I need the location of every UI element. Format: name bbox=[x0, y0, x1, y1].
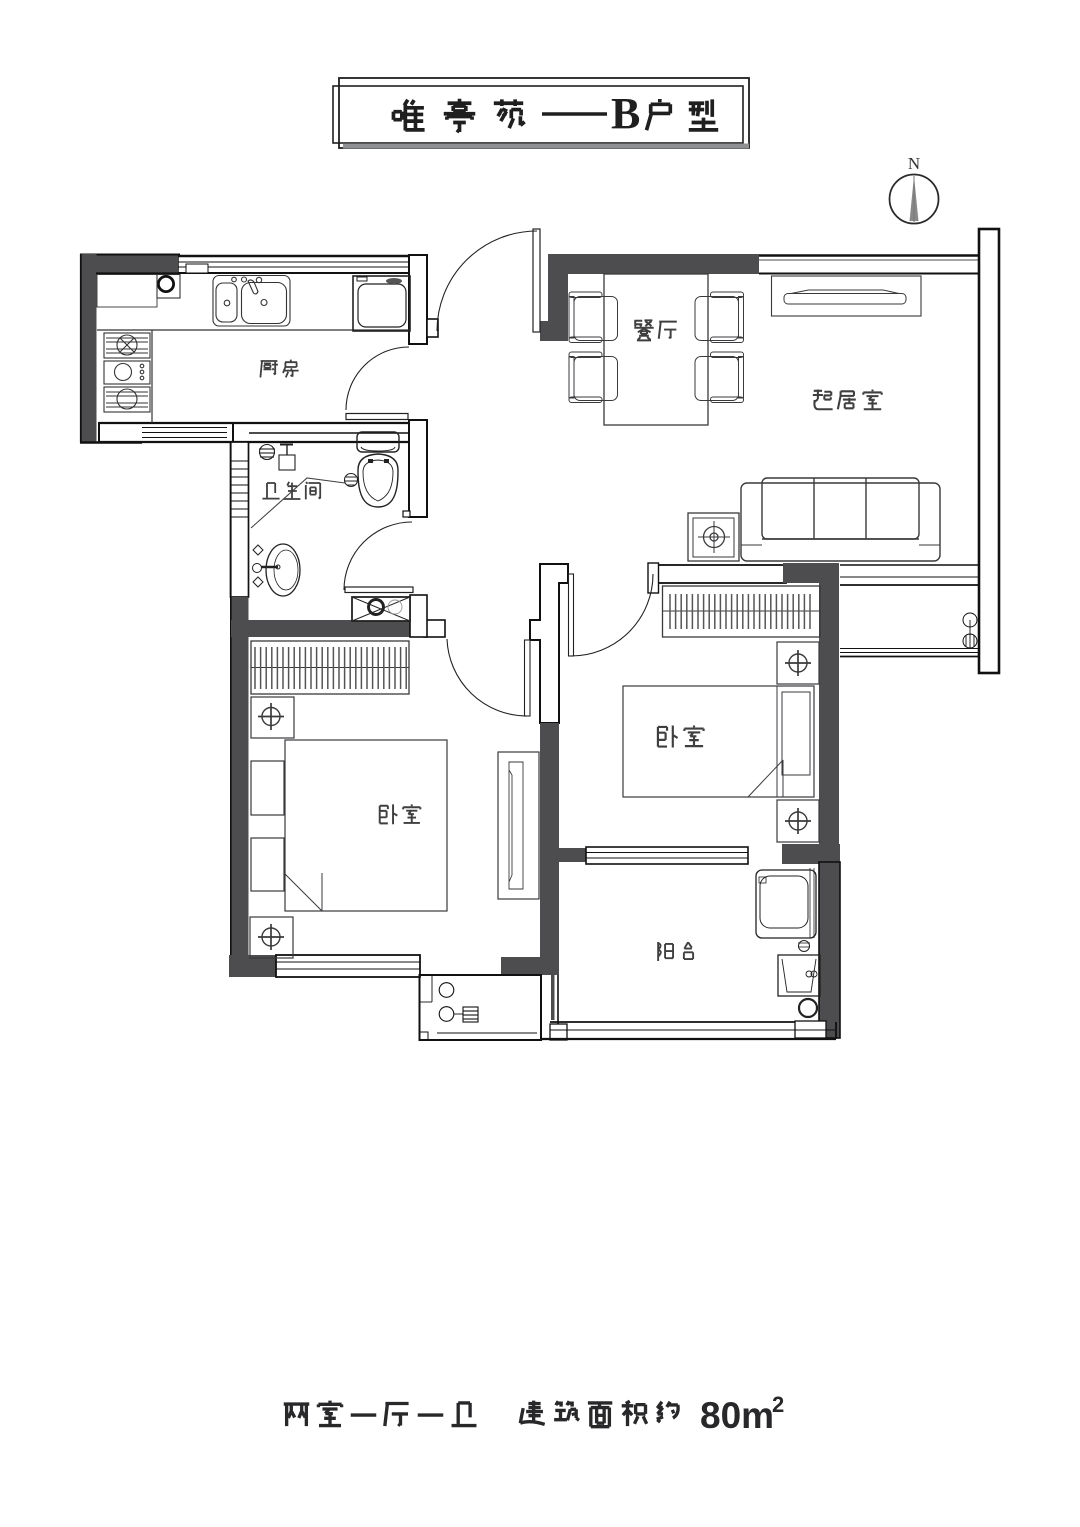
svg-text:N: N bbox=[908, 154, 920, 173]
svg-text:B: B bbox=[611, 89, 640, 138]
svg-text:80m: 80m bbox=[700, 1395, 774, 1436]
svg-text:2: 2 bbox=[772, 1392, 784, 1417]
